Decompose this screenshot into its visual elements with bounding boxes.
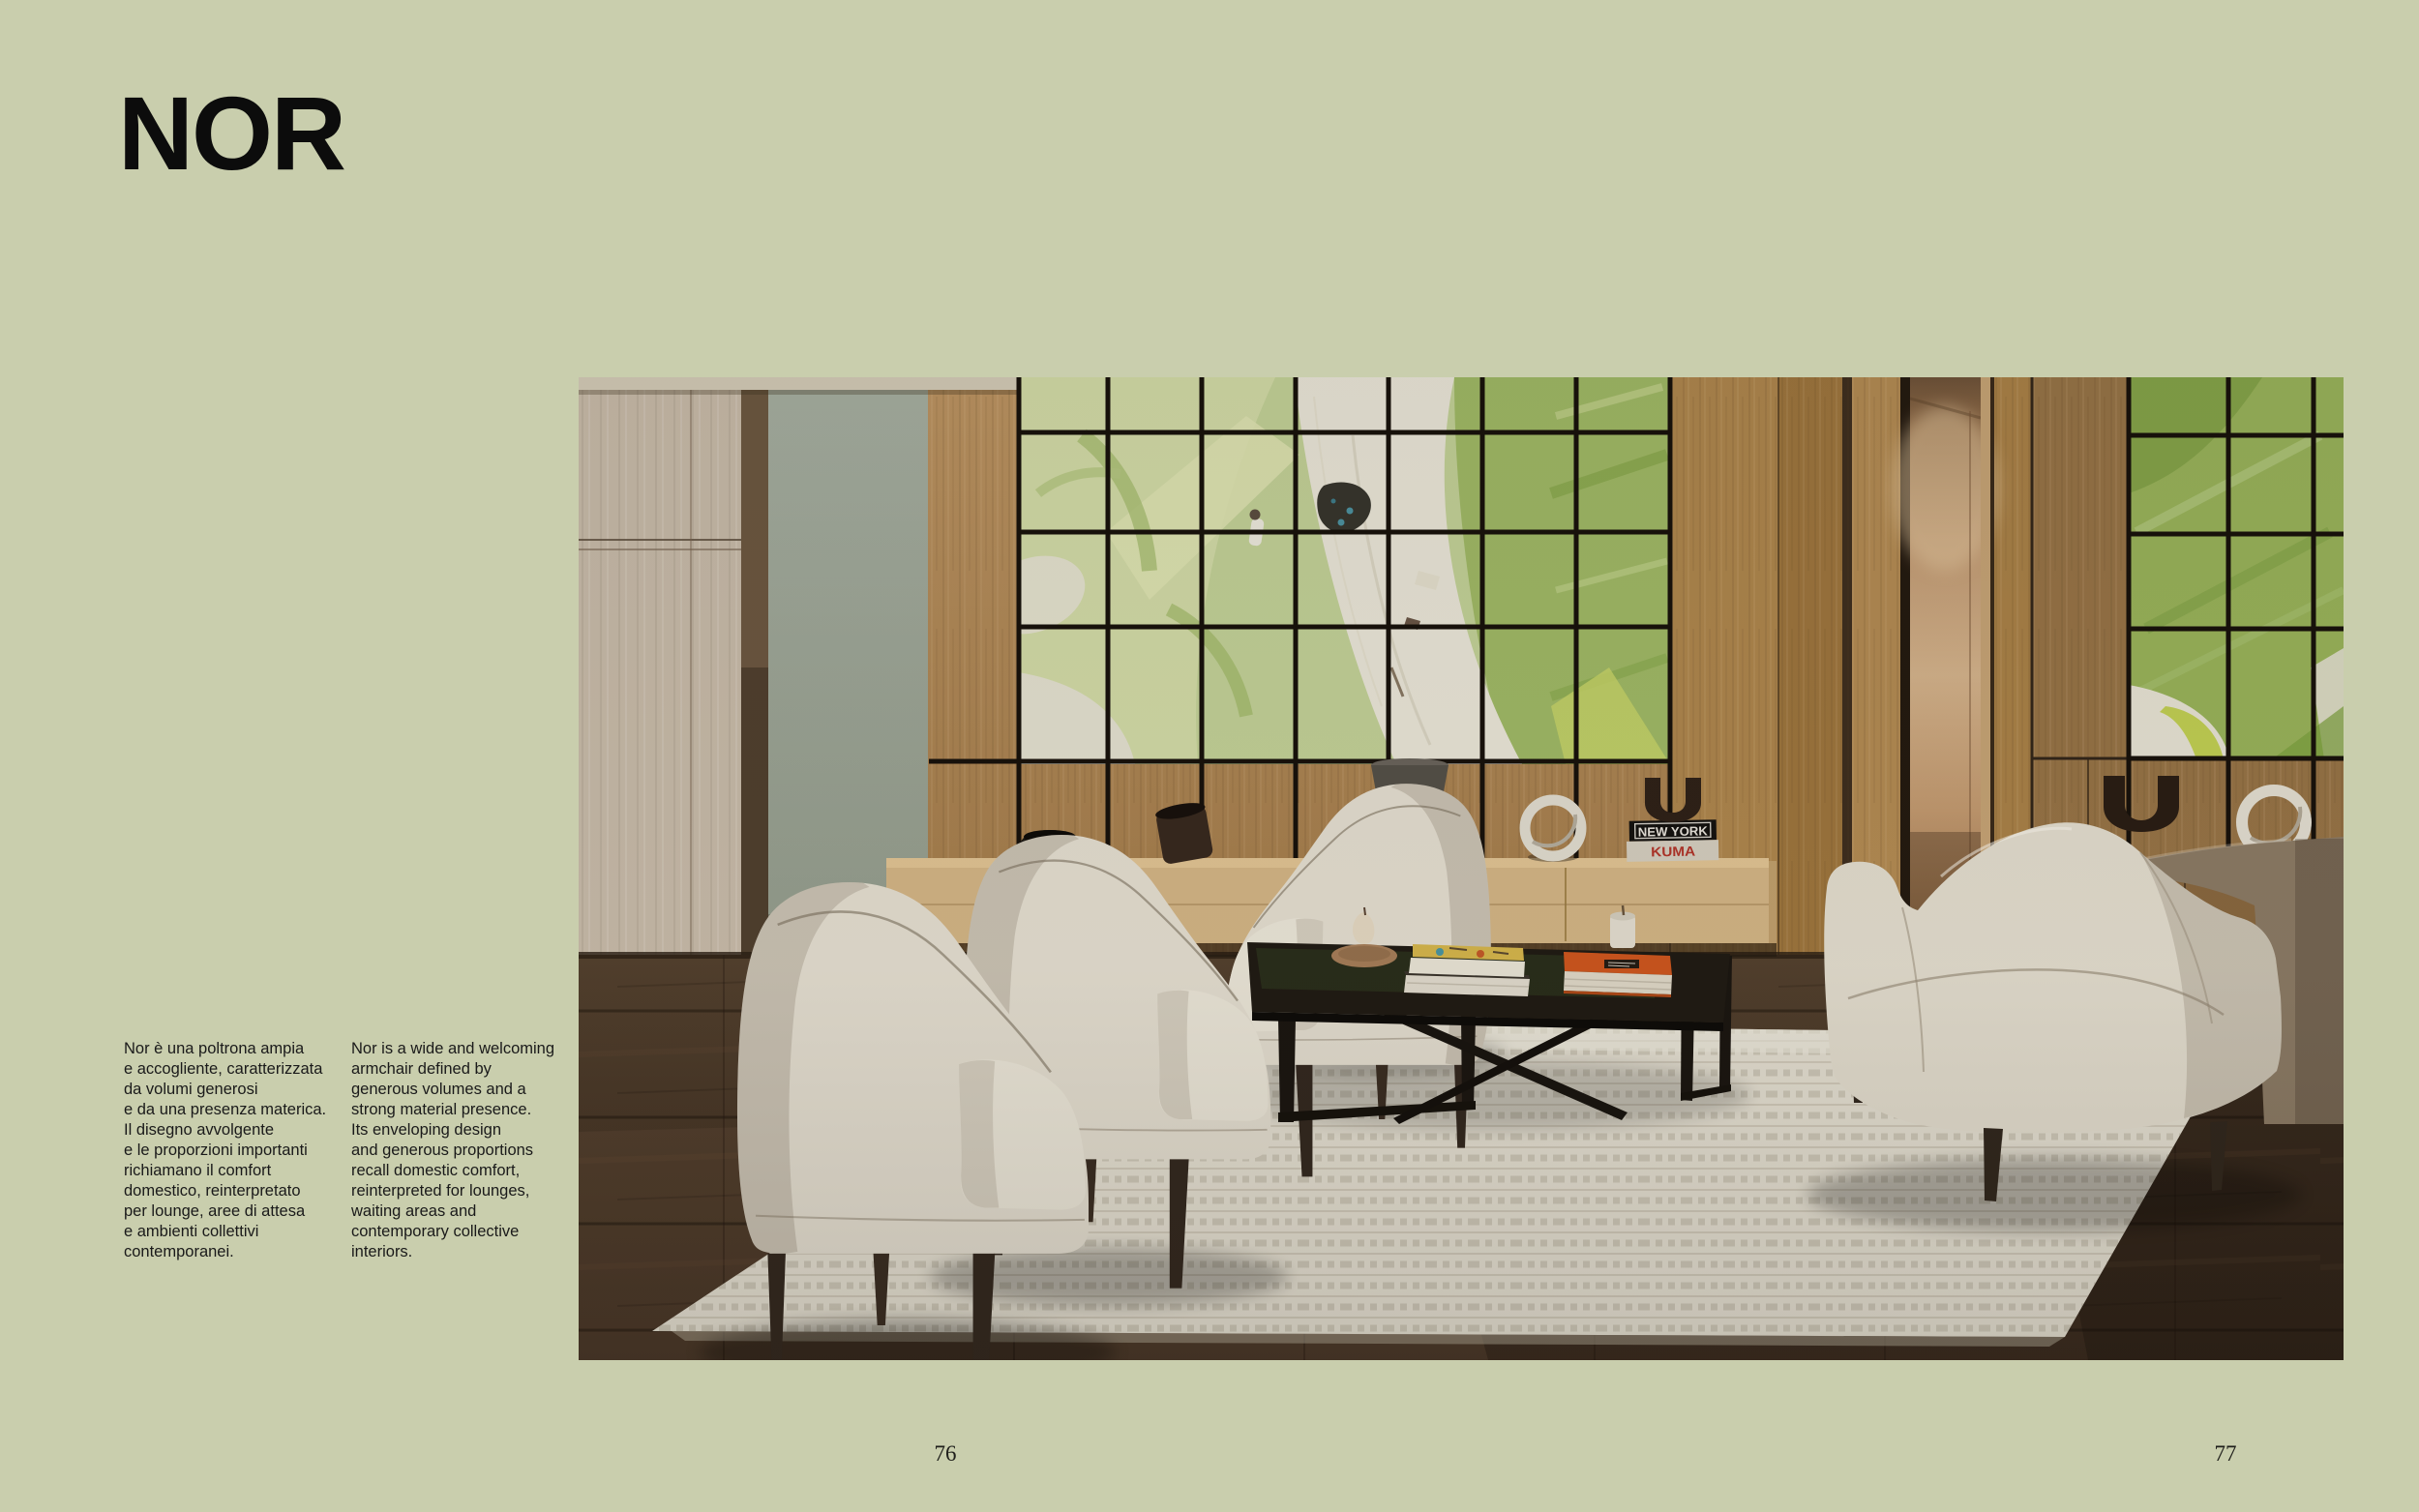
catalog-page: NOR Nor è una poltrona ampia e accoglien… bbox=[0, 0, 2419, 1512]
interior-photo-art: NEW YORK KUMA bbox=[579, 377, 2344, 1360]
page-number-left: 76 bbox=[916, 1441, 974, 1467]
page-number-right: 77 bbox=[2196, 1441, 2255, 1467]
description-english: Nor is a wide and welcoming armchair def… bbox=[351, 1039, 574, 1262]
description-italian: Nor è una poltrona ampia e accogliente, … bbox=[124, 1039, 346, 1262]
page-title: NOR bbox=[118, 81, 344, 186]
interior-photo: NEW YORK KUMA bbox=[579, 377, 2344, 1360]
photo-dim-overlay bbox=[579, 377, 2344, 1360]
